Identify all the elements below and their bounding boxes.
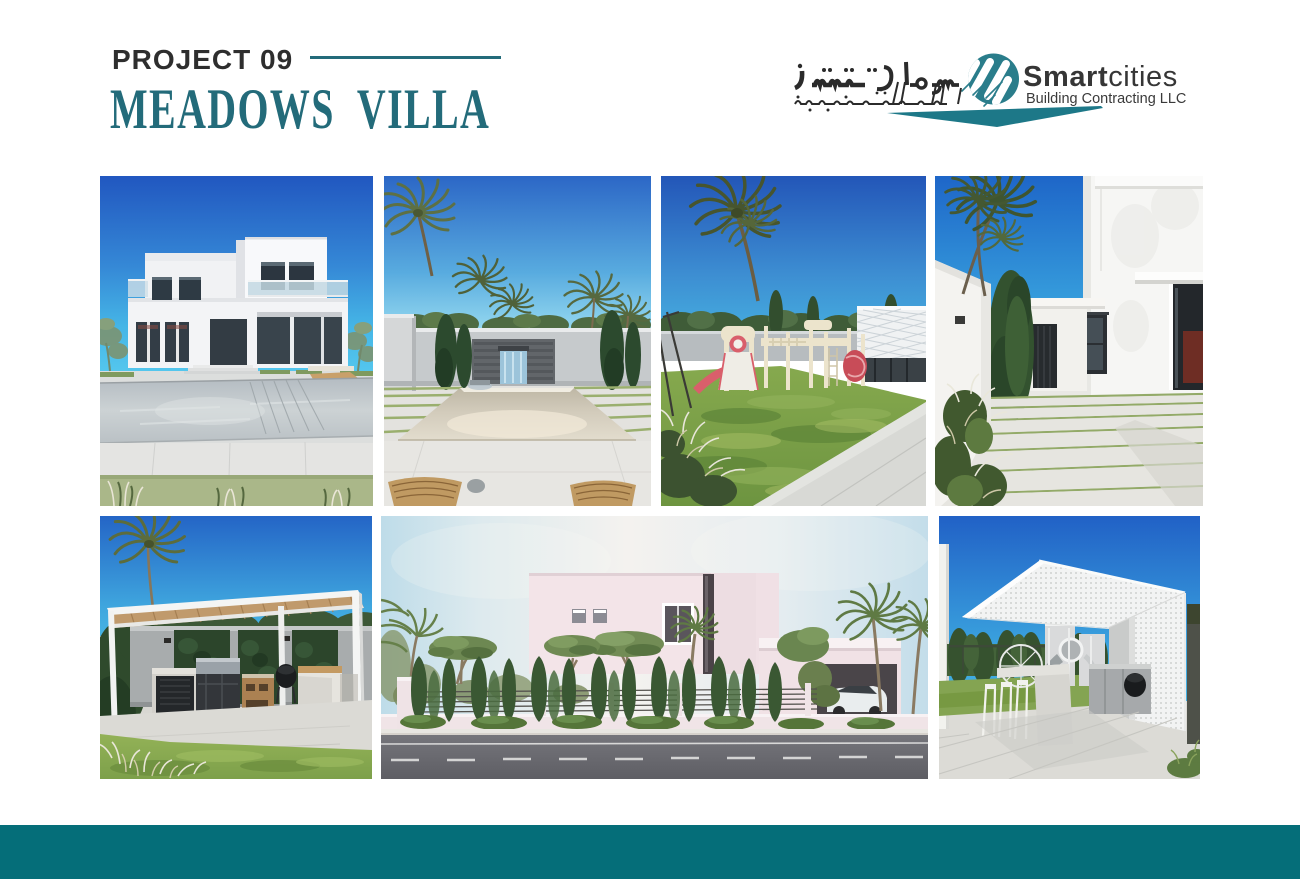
svg-text:Smartcities: Smartcities — [1023, 61, 1178, 93]
svg-text:Building Contracting LLC: Building Contracting LLC — [1026, 91, 1186, 107]
